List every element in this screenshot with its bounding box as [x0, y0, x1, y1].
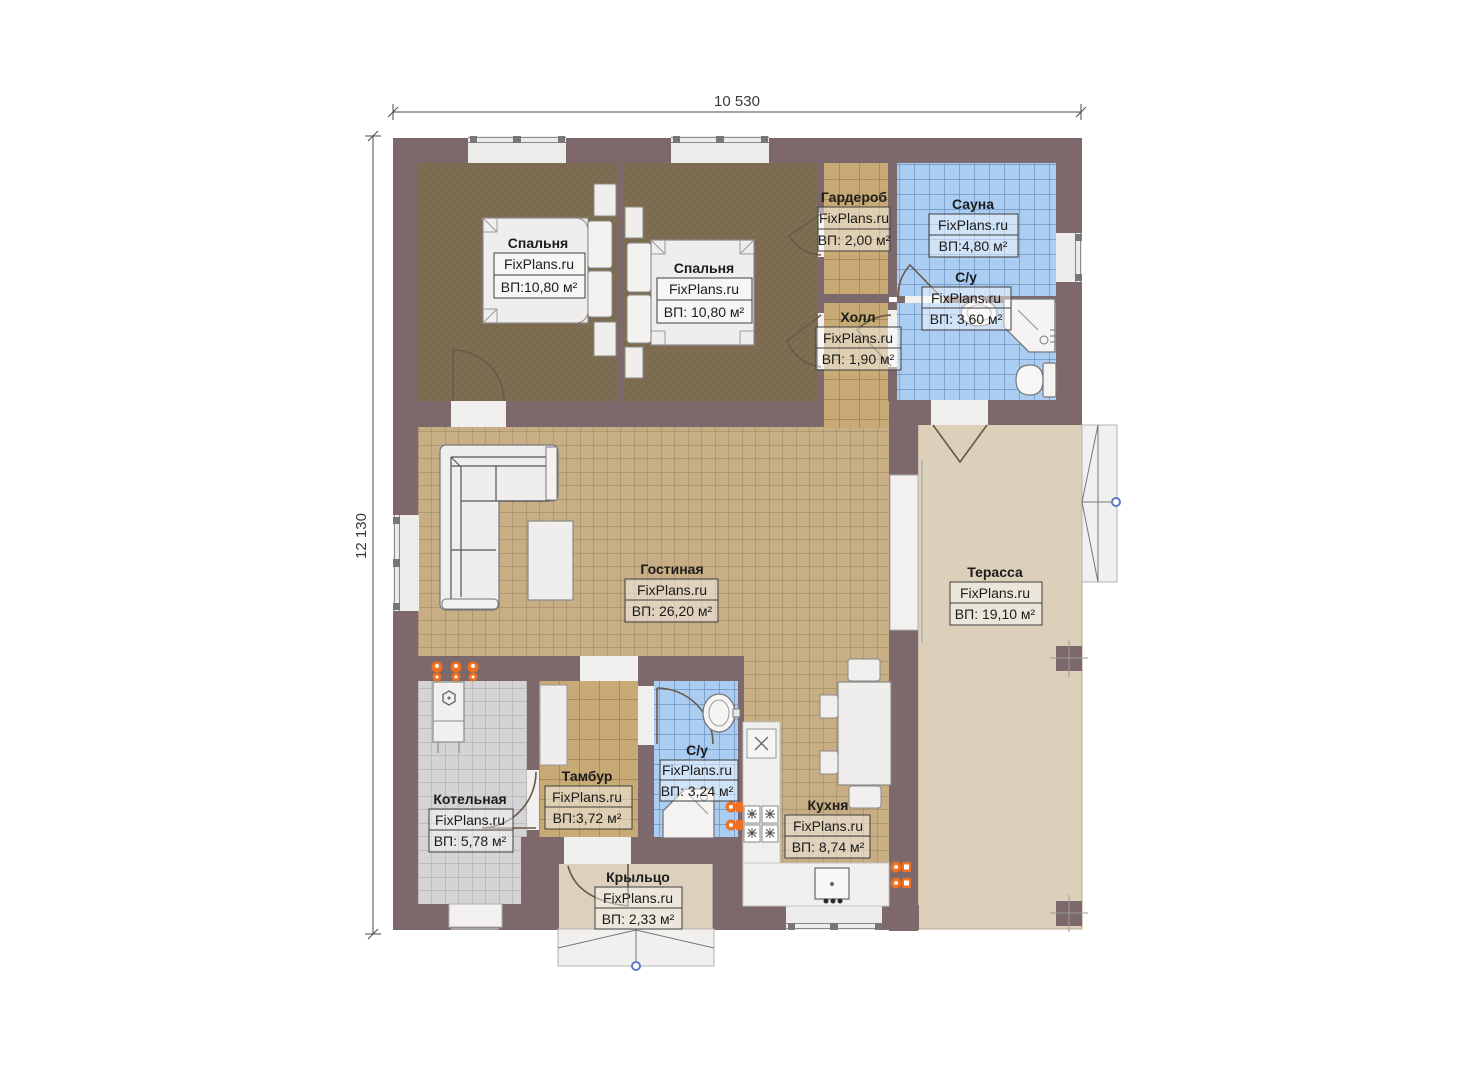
svg-text:FixPlans.ru: FixPlans.ru	[637, 582, 707, 598]
svg-text:ВП: 1,90 м²: ВП: 1,90 м²	[822, 351, 895, 367]
svg-text:Гардероб: Гардероб	[821, 189, 888, 205]
svg-text:FixPlans.ru: FixPlans.ru	[504, 256, 574, 272]
svg-text:Спальня: Спальня	[674, 260, 734, 276]
svg-text:Кухня: Кухня	[808, 797, 849, 813]
svg-text:Котельная: Котельная	[433, 791, 506, 807]
svg-text:ВП: 8,74 м²: ВП: 8,74 м²	[792, 839, 865, 855]
svg-text:ВП: 2,00 м²: ВП: 2,00 м²	[818, 232, 891, 248]
svg-text:FixPlans.ru: FixPlans.ru	[552, 789, 622, 805]
svg-text:FixPlans.ru: FixPlans.ru	[960, 585, 1030, 601]
svg-text:Спальня: Спальня	[508, 235, 568, 251]
svg-text:ВП: 10,80 м²: ВП: 10,80 м²	[664, 304, 745, 320]
svg-text:FixPlans.ru: FixPlans.ru	[819, 210, 889, 226]
svg-text:Крыльцо: Крыльцо	[606, 869, 670, 885]
svg-text:Холл: Холл	[840, 309, 875, 325]
svg-text:С/у: С/у	[955, 269, 977, 285]
svg-text:ВП:4,80 м²: ВП:4,80 м²	[939, 238, 1008, 254]
svg-text:ВП: 2,33 м²: ВП: 2,33 м²	[602, 911, 675, 927]
svg-text:FixPlans.ru: FixPlans.ru	[662, 762, 732, 778]
svg-text:С/у: С/у	[686, 742, 708, 758]
svg-text:Тамбур: Тамбур	[562, 768, 613, 784]
svg-text:FixPlans.ru: FixPlans.ru	[603, 890, 673, 906]
svg-text:FixPlans.ru: FixPlans.ru	[669, 281, 739, 297]
svg-text:ВП:3,72 м²: ВП:3,72 м²	[553, 810, 622, 826]
svg-text:FixPlans.ru: FixPlans.ru	[435, 812, 505, 828]
svg-text:FixPlans.ru: FixPlans.ru	[931, 290, 1001, 306]
svg-text:FixPlans.ru: FixPlans.ru	[823, 330, 893, 346]
svg-text:ВП: 3,60 м²: ВП: 3,60 м²	[930, 311, 1003, 327]
svg-text:ВП:10,80 м²: ВП:10,80 м²	[501, 279, 578, 295]
svg-text:ВП: 3,24 м²: ВП: 3,24 м²	[661, 783, 734, 799]
svg-text:12 130: 12 130	[353, 513, 370, 559]
svg-text:10 530: 10 530	[714, 93, 760, 110]
svg-text:Терасса: Терасса	[967, 564, 1023, 580]
svg-text:ВП: 5,78 м²: ВП: 5,78 м²	[434, 833, 507, 849]
svg-text:FixPlans.ru: FixPlans.ru	[938, 217, 1008, 233]
svg-text:FixPlans.ru: FixPlans.ru	[793, 818, 863, 834]
svg-text:ВП: 19,10 м²: ВП: 19,10 м²	[955, 606, 1036, 622]
svg-text:ВП: 26,20 м²: ВП: 26,20 м²	[632, 603, 713, 619]
svg-text:Сауна: Сауна	[952, 196, 994, 212]
svg-text:Гостиная: Гостиная	[640, 561, 703, 577]
